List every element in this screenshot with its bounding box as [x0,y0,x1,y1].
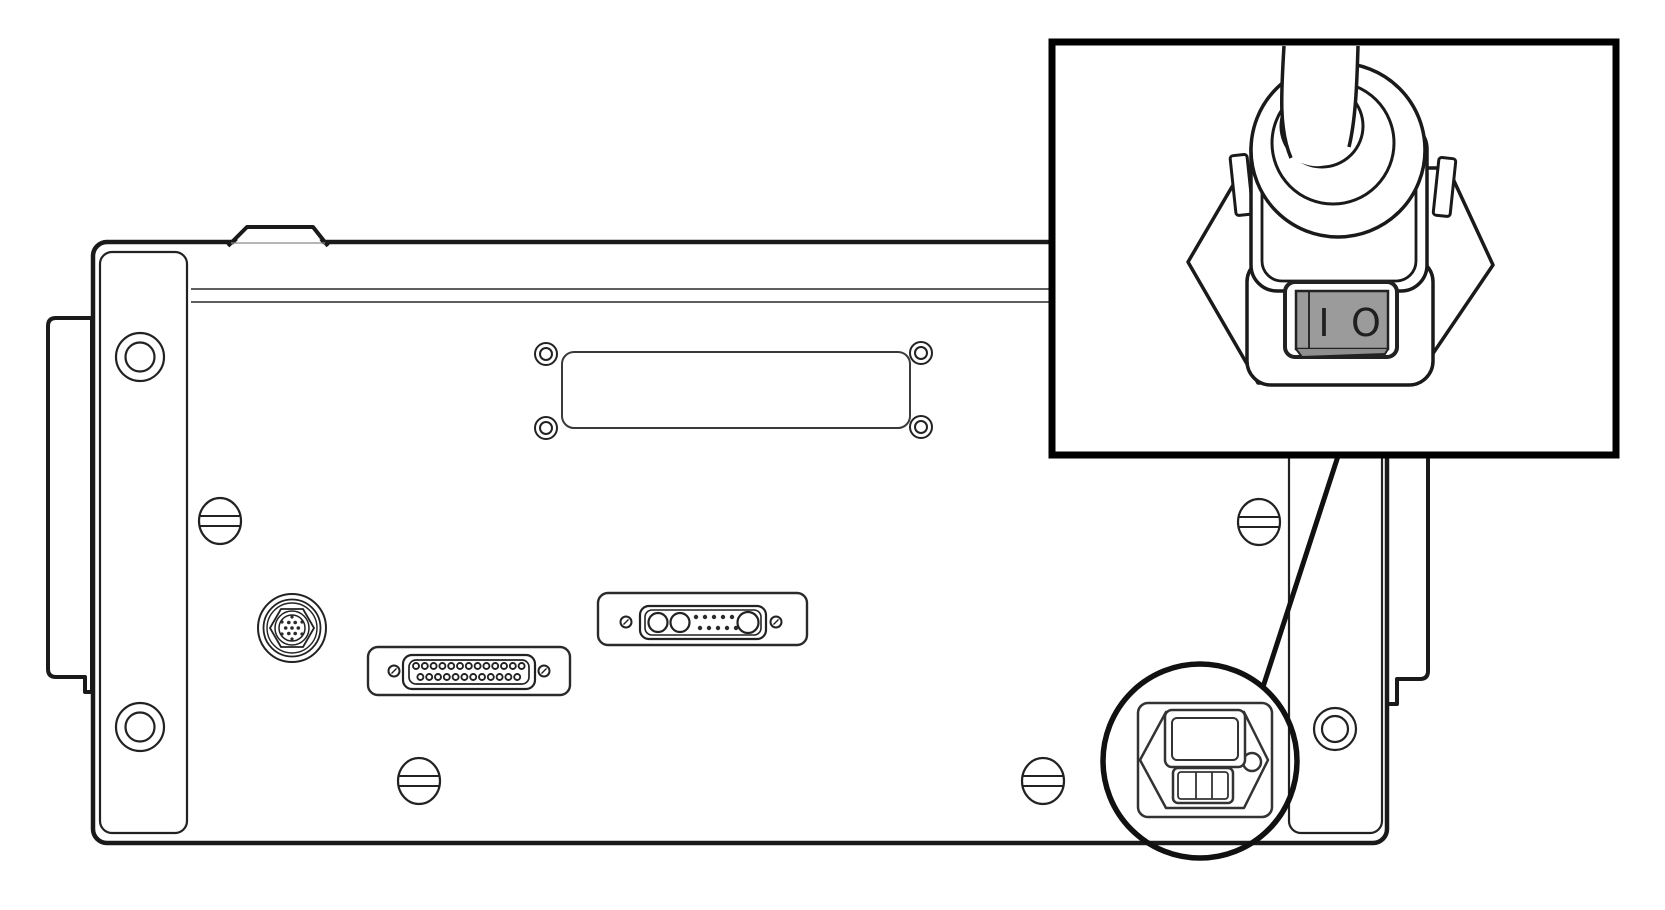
switch-off-mark: O [1351,301,1381,345]
right-side-flange [1387,446,1428,704]
inlet-fuse-drawer [1173,768,1233,803]
switch-on-mark: I [1318,301,1329,345]
cover-plate-screw [535,343,557,365]
power-cord-cable [1282,46,1358,166]
left-mounting-bracket [100,252,187,833]
circular-din-connector [258,594,326,662]
slotted-screw [199,498,241,544]
callout-inset-box: I O [1052,42,1616,455]
slotted-screw [1238,499,1280,545]
cover-plate-screw [535,417,557,439]
slotted-screw [398,758,440,804]
combo-dsub-connector [598,593,807,645]
top-handle-bump [228,227,328,246]
db25-connector [368,647,570,695]
diagram-canvas: I O [0,0,1665,910]
slotted-screw [1022,758,1064,804]
cover-plate-screw [910,342,932,364]
power-inlet-module [1138,703,1272,817]
cover-plate-screw [910,416,932,438]
rocker-power-switch[interactable]: I O [1285,282,1397,357]
left-side-flange [48,318,92,692]
blank-cover-plate [535,342,932,439]
rear-panel-illustration: I O [0,0,1665,910]
